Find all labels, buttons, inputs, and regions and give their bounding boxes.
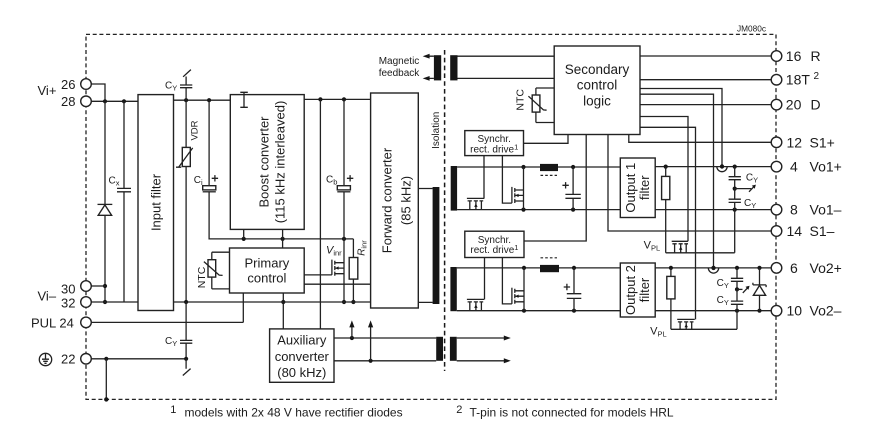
svg-text:(80 kHz): (80 kHz) (277, 365, 326, 380)
svg-text:Output 1: Output 1 (623, 163, 638, 213)
svg-text:2: 2 (456, 404, 462, 416)
svg-text:control: control (577, 78, 618, 93)
svg-text:PUL 24: PUL 24 (31, 316, 74, 331)
svg-text:30: 30 (61, 282, 75, 297)
svg-text:T-pin is not connected for mod: T-pin is not connected for models HRL (470, 406, 674, 420)
svg-text:Vo2–: Vo2– (810, 303, 842, 319)
svg-text:Magnetic: Magnetic (379, 56, 420, 67)
svg-text:16: 16 (786, 48, 802, 64)
svg-text:6: 6 (790, 260, 798, 276)
svg-text:S1+: S1+ (810, 134, 835, 150)
svg-text:Output 2: Output 2 (623, 265, 638, 315)
svg-text:D: D (811, 97, 821, 113)
svg-text:models with 2x 48 V have recti: models with 2x 48 V have rectifier diode… (185, 406, 403, 420)
svg-text:R: R (811, 48, 821, 64)
svg-text:14: 14 (787, 223, 803, 239)
svg-text:28: 28 (61, 94, 75, 109)
svg-text:S1–: S1– (810, 223, 835, 239)
svg-text:Isolation: Isolation (431, 112, 442, 149)
svg-text:Vi+: Vi+ (38, 83, 57, 98)
svg-text:26: 26 (61, 77, 75, 92)
svg-text:Boost converter: Boost converter (257, 116, 272, 208)
svg-text:Primary: Primary (245, 256, 290, 271)
svg-text:4: 4 (790, 159, 798, 175)
svg-text:(115 kHz interleaved): (115 kHz interleaved) (273, 101, 288, 224)
svg-text:rect. drive1: rect. drive1 (470, 243, 518, 256)
svg-text:Vi–: Vi– (38, 289, 57, 304)
svg-text:converter: converter (275, 349, 330, 364)
svg-text:22: 22 (61, 352, 75, 367)
svg-text:12: 12 (787, 134, 803, 150)
svg-text:(85 kHz): (85 kHz) (398, 176, 413, 225)
svg-text:20: 20 (786, 97, 802, 113)
svg-text:filter: filter (637, 175, 652, 200)
svg-text:NTC: NTC (196, 266, 208, 288)
svg-text:filter: filter (637, 277, 652, 302)
svg-text:8: 8 (790, 202, 798, 218)
svg-text:Auxiliary: Auxiliary (277, 333, 327, 348)
svg-text:Input filter: Input filter (148, 173, 163, 231)
svg-text:2: 2 (814, 71, 820, 82)
svg-text:control: control (247, 271, 286, 286)
svg-text:18T: 18T (786, 72, 811, 88)
svg-text:VDR: VDR (190, 120, 201, 140)
svg-text:32: 32 (61, 296, 75, 311)
svg-text:JM080c: JM080c (737, 24, 766, 34)
svg-text:rect. drive1: rect. drive1 (470, 142, 518, 155)
svg-text:Vo1–: Vo1– (810, 202, 842, 218)
svg-text:feedback: feedback (379, 68, 421, 79)
svg-text:Vo2+: Vo2+ (810, 260, 842, 276)
svg-text:Secondary: Secondary (565, 62, 630, 77)
svg-text:Vo1+: Vo1+ (810, 159, 842, 175)
svg-text:10: 10 (787, 303, 803, 319)
svg-text:1: 1 (170, 404, 176, 416)
svg-text:NTC: NTC (514, 89, 526, 111)
svg-text:Forward converter: Forward converter (379, 147, 394, 253)
svg-text:logic: logic (583, 94, 611, 109)
